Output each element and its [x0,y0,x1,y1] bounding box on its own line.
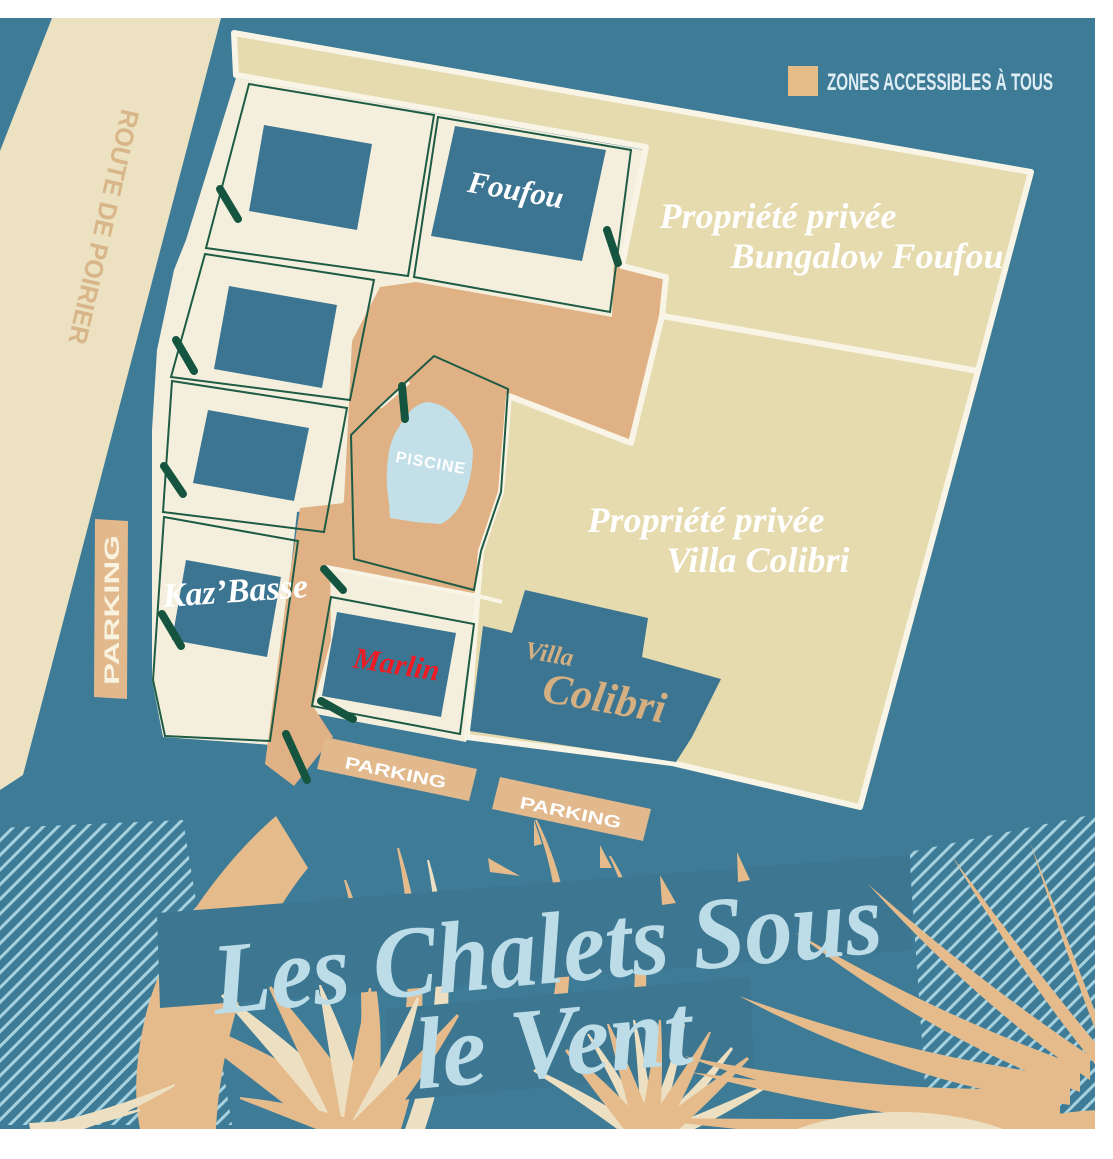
svg-text:PARKING: PARKING [101,535,124,685]
svg-text:Propriété privée: Propriété privée [587,500,825,540]
svg-text:Propriété privée: Propriété privée [659,196,897,236]
svg-text:Bungalow Foufou: Bungalow Foufou [729,236,1003,276]
svg-text:ZONES ACCESSIBLES À TOUS: ZONES ACCESSIBLES À TOUS [827,68,1053,96]
svg-text:Villa Colibri: Villa Colibri [666,540,849,580]
